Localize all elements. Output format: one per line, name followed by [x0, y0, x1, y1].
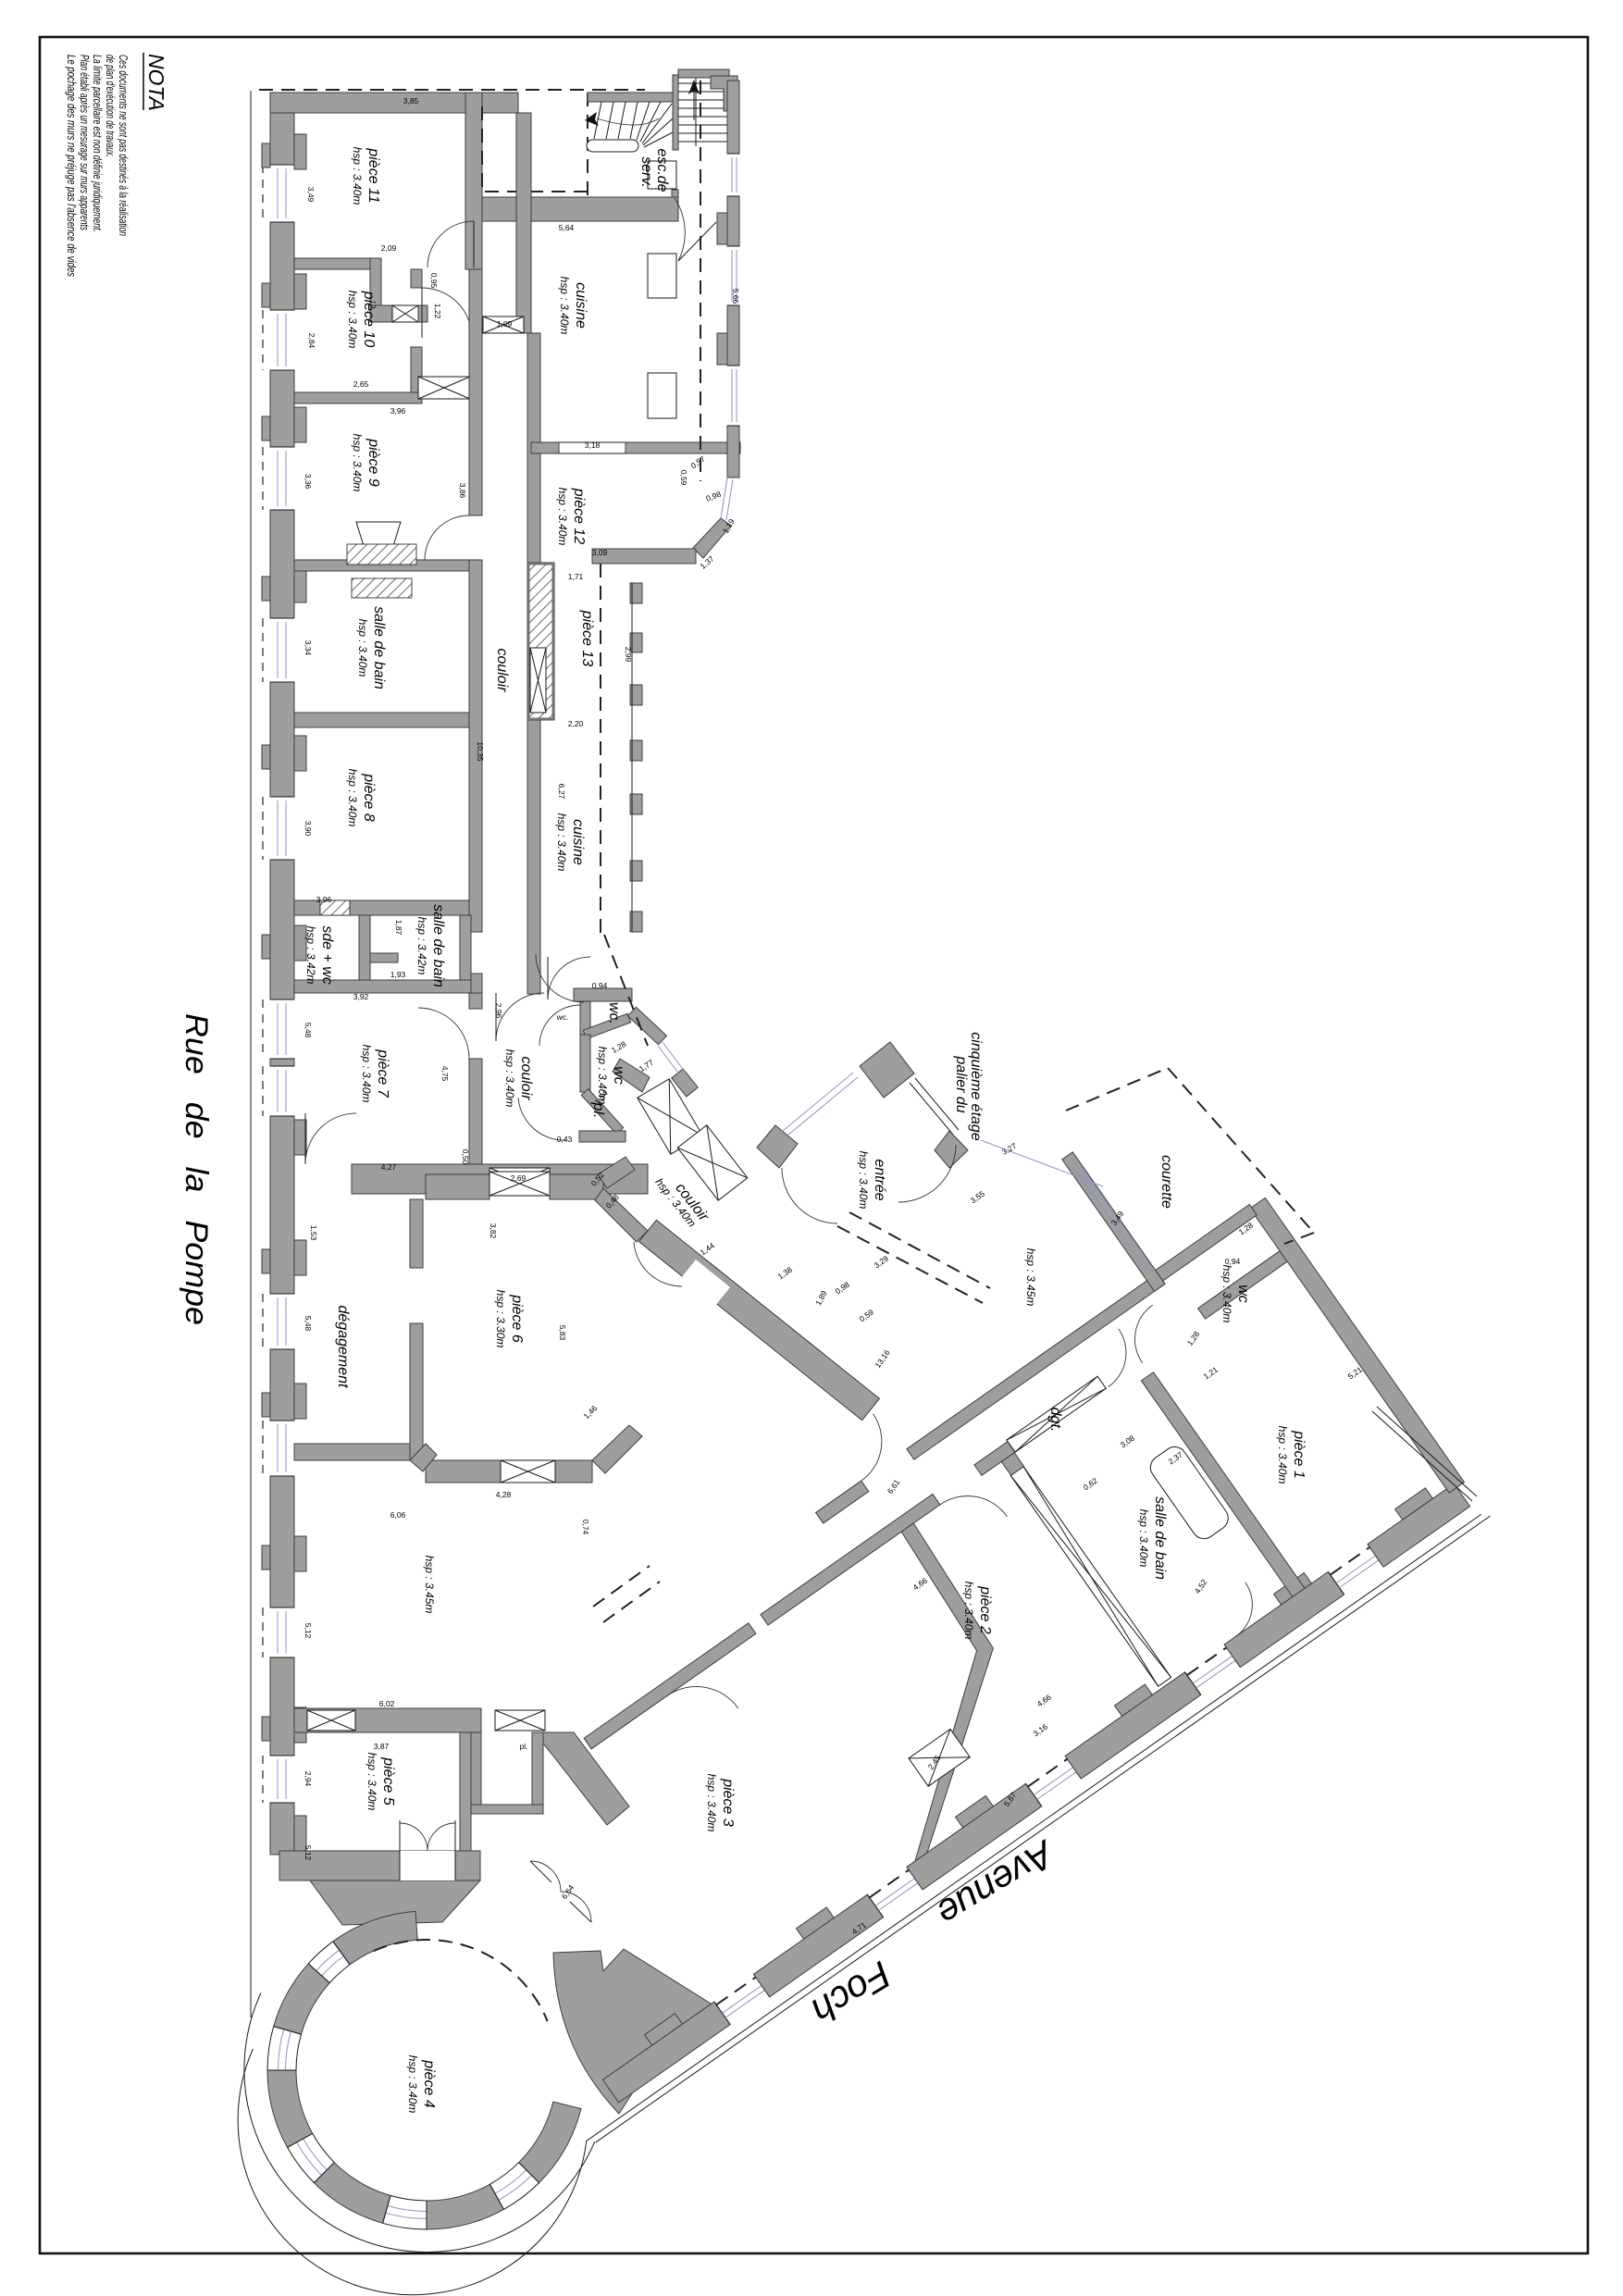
svg-text:salle de bain: salle de bain	[1152, 1496, 1168, 1580]
svg-text:hsp : 3.42m: hsp : 3.42m	[304, 926, 317, 985]
svg-text:wc.: wc.	[606, 1002, 622, 1024]
svg-text:2,96: 2,96	[494, 1003, 503, 1019]
svg-text:pièce 9: pièce 9	[365, 438, 381, 487]
svg-text:pièce 4: pièce 4	[421, 2059, 437, 2108]
svg-text:hsp : 3.45m: hsp : 3.45m	[423, 1556, 436, 1614]
svg-text:salle de bain: salle de bain	[371, 606, 387, 689]
svg-text:10,35: 10,35	[476, 741, 485, 762]
svg-text:dgt.: dgt.	[1047, 1408, 1063, 1433]
svg-text:pièce 11: pièce 11	[365, 147, 381, 203]
svg-text:courette: courette	[1158, 1155, 1174, 1209]
svg-text:wc.: wc.	[556, 1012, 569, 1022]
svg-text:cinquième étage: cinquième étage	[968, 1032, 984, 1141]
svg-text:1,71: 1,71	[568, 572, 584, 581]
svg-text:2,94: 2,94	[304, 1771, 313, 1787]
svg-text:5,48: 5,48	[304, 1023, 313, 1038]
svg-text:pièce 5: pièce 5	[380, 1756, 396, 1806]
svg-text:NOTA: NOTA	[144, 54, 168, 111]
svg-text:3,96: 3,96	[316, 895, 332, 904]
svg-text:0,74: 0,74	[581, 1520, 590, 1535]
svg-text:hsp : 3.40m: hsp : 3.40m	[365, 1753, 378, 1811]
svg-text:pièce 6: pièce 6	[509, 1294, 525, 1343]
svg-text:5,48: 5,48	[304, 1316, 313, 1332]
svg-text:hsp : 3.40m: hsp : 3.40m	[360, 1045, 373, 1103]
svg-text:serv.: serv.	[638, 156, 654, 187]
svg-text:couloir: couloir	[518, 1056, 534, 1100]
svg-text:3,92: 3,92	[353, 992, 369, 1001]
svg-text:4,28: 4,28	[496, 1490, 512, 1499]
svg-text:pièce 8: pièce 8	[361, 773, 377, 822]
svg-text:2,84: 2,84	[307, 333, 316, 349]
svg-text:hsp : 3.45m: hsp : 3.45m	[1024, 1248, 1037, 1307]
svg-text:hsp : 3.40m: hsp : 3.40m	[1137, 1509, 1150, 1568]
svg-text:dégagement: dégagement	[335, 1306, 351, 1389]
svg-text:0,94: 0,94	[592, 981, 608, 990]
svg-text:Plan établi après un mesurage: Plan établi après un mesurage sur murs a…	[78, 55, 91, 230]
svg-text:hsp : 3.40m: hsp : 3.40m	[556, 488, 569, 546]
svg-text:cuisine: cuisine	[573, 282, 588, 329]
svg-text:3,82: 3,82	[489, 1223, 498, 1239]
svg-text:hsp : 3.42m: hsp : 3.42m	[415, 917, 428, 975]
svg-text:3,85: 3,85	[403, 96, 419, 105]
svg-text:0,50: 0,50	[461, 1149, 470, 1165]
svg-text:1,93: 1,93	[390, 970, 406, 979]
svg-text:3,90: 3,90	[304, 821, 313, 837]
svg-text:pièce 1: pièce 1	[1291, 1430, 1307, 1479]
svg-text:couloir: couloir	[494, 648, 510, 692]
svg-text:hsp : 3.30m: hsp : 3.30m	[494, 1290, 507, 1348]
svg-text:wc: wc	[611, 1066, 626, 1085]
svg-text:Ces documents ne sont pas dest: Ces documents ne sont pas destinés à la …	[117, 55, 130, 236]
svg-text:2,09: 2,09	[381, 243, 397, 253]
svg-text:wc: wc	[1235, 1285, 1251, 1303]
svg-text:hsp : 3.40m: hsp : 3.40m	[555, 813, 568, 872]
svg-text:hsp : 3.40m: hsp : 3.40m	[1220, 1265, 1233, 1323]
svg-text:hsp : 3.40m: hsp : 3.40m	[406, 2055, 419, 2114]
svg-text:salle de bain: salle de bain	[430, 904, 446, 987]
svg-text:hsp : 3.40m: hsp : 3.40m	[705, 1774, 718, 1832]
svg-text:entrée: entrée	[872, 1159, 887, 1200]
svg-text:hsp : 3.40m: hsp : 3.40m	[356, 619, 369, 677]
svg-text:pièce 2: pièce 2	[977, 1585, 993, 1634]
svg-text:5,12: 5,12	[304, 1623, 313, 1639]
svg-text:2,69: 2,69	[511, 1173, 527, 1183]
svg-text:2,65: 2,65	[353, 379, 369, 389]
svg-text:Rue de la Pompe: Rue de la Pompe	[179, 1013, 214, 1325]
svg-text:pièce 10: pièce 10	[361, 291, 377, 348]
svg-text:0,59: 0,59	[679, 470, 688, 486]
svg-text:1,22: 1,22	[433, 304, 442, 319]
svg-text:pièce 12: pièce 12	[571, 488, 587, 545]
svg-text:La limite parcellaire est non: La limite parcellaire est non définie ju…	[91, 55, 104, 232]
svg-text:3,49: 3,49	[306, 187, 316, 203]
svg-text:1,53: 1,53	[309, 1225, 318, 1241]
svg-text:pièce 7: pièce 7	[375, 1049, 390, 1098]
svg-text:5,64: 5,64	[559, 223, 575, 232]
svg-text:1,09: 1,09	[497, 319, 513, 329]
svg-text:Le pochage des murs ne préjuge: Le pochage des murs ne préjuge pas l'abs…	[65, 55, 78, 277]
svg-text:3,34: 3,34	[304, 640, 313, 656]
svg-text:hsp : 3.40m: hsp : 3.40m	[346, 769, 359, 827]
svg-text:2,99: 2,99	[624, 647, 633, 663]
svg-text:6,06: 6,06	[390, 1510, 406, 1520]
svg-text:esc.de: esc.de	[654, 148, 670, 192]
svg-text:pl.: pl.	[520, 1742, 528, 1751]
svg-text:hsp : 3.40m: hsp : 3.40m	[558, 277, 571, 335]
svg-text:de plan d'exécution de travaux: de plan d'exécution de travaux.	[104, 55, 117, 157]
svg-text:5,12: 5,12	[304, 1845, 313, 1861]
svg-text:hsp : 3.40m: hsp : 3.40m	[351, 434, 364, 492]
svg-text:6,27: 6,27	[557, 784, 566, 800]
svg-text:5,66: 5,66	[731, 289, 740, 304]
svg-text:3,09: 3,09	[592, 548, 608, 557]
svg-text:1,87: 1,87	[394, 920, 403, 936]
svg-text:2,20: 2,20	[568, 719, 584, 728]
svg-text:5,83: 5,83	[558, 1325, 567, 1341]
svg-text:0,43: 0,43	[557, 1135, 573, 1144]
svg-text:pièce 13: pièce 13	[579, 610, 595, 667]
svg-text:3,96: 3,96	[390, 406, 406, 416]
svg-text:4,27: 4,27	[381, 1162, 397, 1172]
svg-text:hsp : 3.40m: hsp : 3.40m	[857, 1151, 870, 1210]
svg-text:4,75: 4,75	[440, 1066, 450, 1082]
svg-text:3,86: 3,86	[458, 483, 467, 499]
svg-text:3,18: 3,18	[585, 441, 601, 450]
svg-text:pièce 3: pièce 3	[720, 1778, 736, 1827]
svg-text:hsp : 3.40m: hsp : 3.40m	[503, 1049, 516, 1108]
svg-text:sde + wc: sde + wc	[319, 925, 335, 985]
svg-text:hsp : 3.40m: hsp : 3.40m	[962, 1582, 975, 1640]
svg-text:6,02: 6,02	[379, 1699, 395, 1708]
svg-text:hsp : 3.40m: hsp : 3.40m	[1276, 1426, 1289, 1484]
svg-text:3,87: 3,87	[374, 1742, 390, 1751]
svg-text:cuisine: cuisine	[570, 819, 586, 865]
svg-text:hsp : 3.40m: hsp : 3.40m	[351, 147, 364, 205]
svg-text:0,95: 0,95	[429, 273, 439, 289]
svg-text:0,94: 0,94	[1225, 1257, 1241, 1266]
svg-text:3,36: 3,36	[304, 474, 313, 490]
svg-text:hsp : 3.40m: hsp : 3.40m	[346, 291, 359, 349]
svg-text:palier du: palier du	[953, 1055, 969, 1112]
